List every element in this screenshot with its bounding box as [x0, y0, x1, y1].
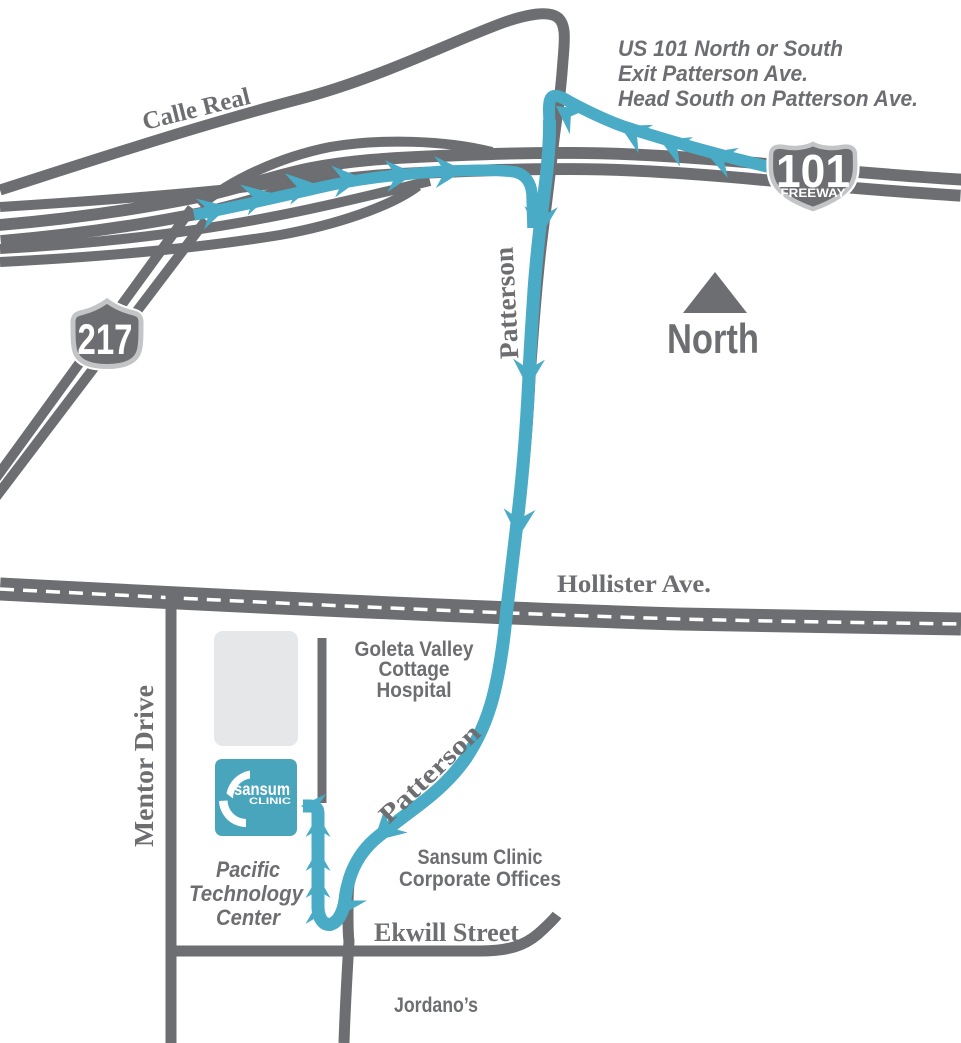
- svg-text:CLINIC: CLINIC: [249, 796, 291, 806]
- svg-text:Patterson: Patterson: [489, 246, 525, 359]
- svg-text:US 101 North or South: US 101 North or South: [618, 36, 843, 61]
- svg-text:Mentor Drive: Mentor Drive: [129, 685, 159, 847]
- svg-text:Jordano’s: Jordano’s: [394, 994, 478, 1017]
- svg-text:Head South on Patterson Ave.: Head South on Patterson Ave.: [618, 86, 918, 111]
- svg-text:Hospital: Hospital: [377, 678, 452, 702]
- svg-text:Sansum Clinic: Sansum Clinic: [418, 845, 543, 869]
- svg-text:North: North: [667, 315, 759, 362]
- svg-text:Technology: Technology: [189, 881, 304, 906]
- svg-text:Hollister Ave.: Hollister Ave.: [557, 571, 711, 598]
- svg-text:FREEWAY: FREEWAY: [781, 188, 846, 200]
- svg-text:Pacific: Pacific: [216, 857, 280, 882]
- svg-text:217: 217: [78, 316, 133, 364]
- svg-text:Center: Center: [216, 905, 281, 930]
- svg-text:Exit Patterson Ave.: Exit Patterson Ave.: [618, 61, 808, 86]
- svg-text:Ekwill Street: Ekwill Street: [374, 918, 519, 947]
- svg-text:Corporate Offices: Corporate Offices: [399, 867, 561, 891]
